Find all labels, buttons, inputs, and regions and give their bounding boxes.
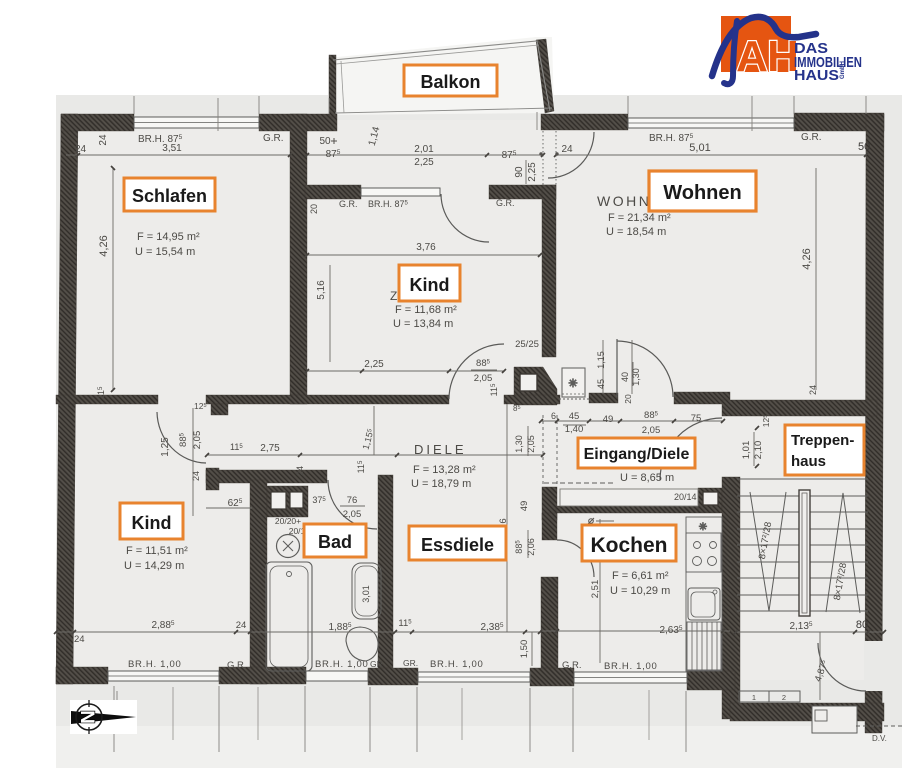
svg-text:4,26: 4,26 <box>801 248 813 269</box>
svg-text:DIELE: DIELE <box>414 442 467 457</box>
svg-text:2,05: 2,05 <box>474 373 493 384</box>
svg-text:Kind: Kind <box>410 275 450 295</box>
svg-text:3,01: 3,01 <box>361 585 371 603</box>
svg-text:G.R.: G.R. <box>801 132 822 143</box>
svg-text:2,05: 2,05 <box>642 425 661 436</box>
svg-text:U = 18,54 m: U = 18,54 m <box>606 226 666 238</box>
svg-text:GR.: GR. <box>403 658 418 668</box>
svg-text:90: 90 <box>514 166 525 178</box>
svg-text:49: 49 <box>603 414 614 425</box>
svg-text:45: 45 <box>596 379 606 389</box>
svg-text:HAUS: HAUS <box>794 67 839 84</box>
svg-text:G.R.: G.R. <box>562 660 582 671</box>
svg-text:76: 76 <box>347 495 358 506</box>
svg-text:Z: Z <box>390 289 397 303</box>
svg-text:G.R.: G.R. <box>496 198 515 208</box>
svg-text:✳: ✳ <box>568 378 577 390</box>
svg-text:25/25: 25/25 <box>515 339 539 350</box>
svg-text:BR.H. 1,00: BR.H. 1,00 <box>604 661 657 672</box>
svg-text:24: 24 <box>75 144 87 155</box>
svg-text:G.R.: G.R. <box>339 199 358 209</box>
svg-text:1,30: 1,30 <box>631 368 641 386</box>
svg-text:F = 21,34 m²: F = 21,34 m² <box>608 212 671 224</box>
svg-text:24: 24 <box>808 385 818 395</box>
svg-text:2,01: 2,01 <box>414 144 434 155</box>
svg-text:Wohnen: Wohnen <box>663 182 742 204</box>
svg-text:24: 24 <box>561 144 573 155</box>
svg-text:BR.H. 1,00: BR.H. 1,00 <box>315 659 368 670</box>
svg-text:GR: GR <box>370 659 383 669</box>
svg-text:F = 6,61 m²: F = 6,61 m² <box>612 570 669 582</box>
svg-text:2,75: 2,75 <box>260 443 280 454</box>
svg-text:1,50: 1,50 <box>519 640 530 659</box>
svg-text:Balkon: Balkon <box>420 72 480 92</box>
svg-text:Essdiele: Essdiele <box>421 535 494 555</box>
svg-text:U = 13,84 m: U = 13,84 m <box>393 318 453 330</box>
svg-text:2,25: 2,25 <box>364 359 384 370</box>
svg-text:D.V.: D.V. <box>872 734 887 743</box>
svg-text:50: 50 <box>319 136 331 147</box>
svg-text:BR.H. 875: BR.H. 875 <box>368 199 409 209</box>
svg-text:49: 49 <box>519 501 530 512</box>
svg-text:20: 20 <box>623 394 633 404</box>
svg-text:2,05: 2,05 <box>526 435 536 453</box>
svg-text:✳: ✳ <box>699 522 707 533</box>
svg-text:5,01: 5,01 <box>689 142 710 154</box>
svg-text:U = 18,79 m: U = 18,79 m <box>411 478 471 490</box>
svg-text:2,10: 2,10 <box>753 441 764 460</box>
svg-text:G.R.: G.R. <box>263 133 284 144</box>
svg-text:N: N <box>79 710 100 724</box>
svg-text:50: 50 <box>858 141 870 153</box>
svg-text:haus: haus <box>791 453 826 470</box>
svg-text:1,30: 1,30 <box>514 435 524 453</box>
svg-text:24: 24 <box>191 471 201 481</box>
svg-text:2,05: 2,05 <box>192 431 203 450</box>
svg-text:1,40: 1,40 <box>565 424 584 435</box>
svg-text:Bad: Bad <box>318 532 352 552</box>
svg-text:2,05: 2,05 <box>343 509 362 520</box>
svg-text:U = 10,29 m: U = 10,29 m <box>610 585 670 597</box>
svg-text:2,51: 2,51 <box>590 580 601 599</box>
svg-text:GmbH: GmbH <box>840 61 846 79</box>
svg-text:U = 8,65 m: U = 8,65 m <box>620 472 674 484</box>
svg-text:BR.H. 875: BR.H. 875 <box>138 134 183 145</box>
svg-text:G.R.: G.R. <box>227 660 247 671</box>
svg-text:20: 20 <box>309 204 319 214</box>
svg-text:20/20+: 20/20+ <box>275 516 301 526</box>
svg-text:24: 24 <box>295 466 305 476</box>
svg-text:F = 13,28 m²: F = 13,28 m² <box>413 464 476 476</box>
svg-text:5,16: 5,16 <box>316 280 327 300</box>
svg-text:3,76: 3,76 <box>416 242 436 253</box>
svg-text:45: 45 <box>569 411 580 422</box>
svg-text:Eingang/Diele: Eingang/Diele <box>584 446 690 463</box>
svg-text:40: 40 <box>620 372 630 382</box>
svg-text:24: 24 <box>74 634 85 645</box>
svg-text:2,25: 2,25 <box>414 157 434 168</box>
svg-text:Schlafen: Schlafen <box>132 186 207 206</box>
svg-text:75: 75 <box>691 413 702 424</box>
svg-text:1,01: 1,01 <box>741 441 752 460</box>
svg-text:U = 14,29 m: U = 14,29 m <box>124 560 184 572</box>
svg-text:24: 24 <box>98 134 109 146</box>
svg-text:80: 80 <box>856 619 868 631</box>
svg-text:F = 11,51 m²: F = 11,51 m² <box>126 545 188 557</box>
svg-text:BR.H. 1,00: BR.H. 1,00 <box>430 659 483 670</box>
svg-text:24: 24 <box>236 620 247 631</box>
svg-text:2,25: 2,25 <box>527 162 538 182</box>
svg-text:1,25: 1,25 <box>160 437 171 457</box>
svg-text:Treppen-: Treppen- <box>791 432 854 449</box>
svg-text:Kochen: Kochen <box>590 534 667 557</box>
svg-text:4,26: 4,26 <box>98 235 110 256</box>
svg-text:6,: 6, <box>551 411 559 421</box>
svg-text:1,15: 1,15 <box>596 351 606 369</box>
svg-text:BR.H. 875: BR.H. 875 <box>649 133 694 144</box>
svg-text:Kind: Kind <box>132 513 172 533</box>
svg-text:F = 14,95 m²: F = 14,95 m² <box>137 231 200 243</box>
svg-text:20/14: 20/14 <box>674 492 697 502</box>
svg-text:2,06: 2,06 <box>526 538 536 556</box>
svg-text:1: 1 <box>752 693 756 702</box>
svg-text:A: A <box>736 32 768 81</box>
svg-text:2: 2 <box>782 693 786 702</box>
svg-text:U = 15,54 m: U = 15,54 m <box>135 246 195 258</box>
svg-text:F = 11,68 m²: F = 11,68 m² <box>395 304 457 316</box>
svg-text:BR.H. 1,00: BR.H. 1,00 <box>128 659 181 670</box>
